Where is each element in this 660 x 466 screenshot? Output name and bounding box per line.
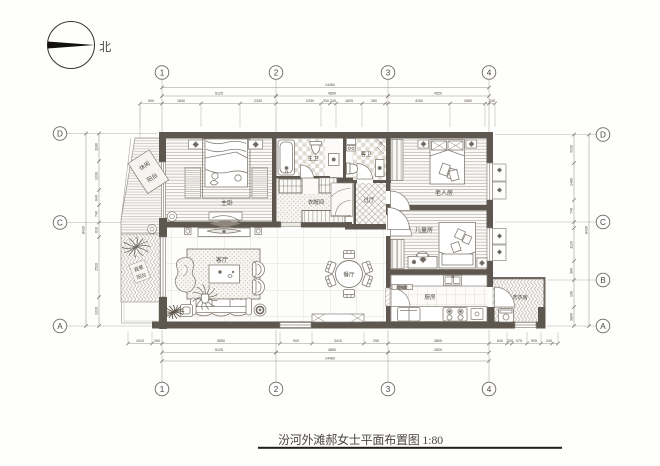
svg-text:1825: 1825 [345,99,353,103]
svg-text:8430: 8430 [82,226,86,234]
svg-text:2520: 2520 [95,263,99,271]
svg-text:330: 330 [323,99,329,103]
svg-text:1120: 1120 [570,241,574,249]
svg-text:餐厅: 餐厅 [343,271,355,279]
svg-text:A: A [600,322,606,331]
svg-text:740: 740 [95,211,99,217]
svg-text:610: 610 [95,227,99,233]
svg-text:900: 900 [293,339,299,343]
svg-text:280: 280 [371,99,377,103]
svg-text:1840: 1840 [177,99,185,103]
svg-text:D: D [600,130,606,139]
svg-text:4850: 4850 [328,348,336,352]
svg-text:250: 250 [154,339,160,343]
svg-text:900: 900 [148,99,154,103]
svg-text:740: 740 [570,208,574,214]
svg-text:1180: 1180 [95,143,99,151]
svg-text:厨房: 厨房 [424,293,436,301]
svg-text:8430: 8430 [585,226,589,234]
svg-text:3805: 3805 [434,339,442,343]
svg-text:640: 640 [95,195,99,201]
svg-text:B: B [600,276,606,285]
svg-text:客厅: 客厅 [216,256,228,264]
svg-text:1230: 1230 [95,172,99,180]
svg-text:D: D [57,129,63,138]
svg-text:4250: 4250 [415,99,423,103]
svg-text:客卫: 客卫 [361,150,372,158]
svg-text:14460: 14460 [325,357,335,361]
svg-text:C: C [57,218,63,227]
svg-text:5550: 5550 [217,339,225,343]
svg-text:905: 905 [531,339,537,343]
svg-text:C: C [600,218,606,227]
svg-text:衣帽间: 衣帽间 [308,198,324,206]
svg-text:2850: 2850 [464,99,472,103]
svg-text:240: 240 [330,99,336,103]
svg-text:245: 245 [489,99,495,103]
svg-text:2: 2 [274,68,279,77]
svg-text:主卫: 主卫 [308,155,319,163]
svg-text:205: 205 [507,339,513,343]
svg-text:2330: 2330 [254,99,262,103]
svg-text:A: A [57,322,63,331]
svg-text:1480: 1480 [570,178,574,186]
svg-text:1010: 1010 [136,339,144,343]
svg-text:975: 975 [516,339,522,343]
svg-text:4: 4 [487,385,492,394]
svg-text:1: 1 [160,68,165,77]
svg-text:配电箱: 配电箱 [397,285,408,290]
svg-text:2330: 2330 [306,99,314,103]
svg-text:4520: 4520 [434,348,442,352]
svg-text:240: 240 [546,339,552,343]
svg-text:洗衣房: 洗衣房 [512,293,528,301]
svg-text:4520: 4520 [434,92,442,96]
svg-text:3860: 3860 [570,313,574,321]
svg-text:4230: 4230 [570,145,574,153]
svg-text:儿童房: 儿童房 [415,226,433,234]
svg-text:190: 190 [570,291,574,297]
svg-text:290: 290 [373,339,379,343]
svg-text:汾河外滩郝女士平面布置图 1:80: 汾河外滩郝女士平面布置图 1:80 [278,432,443,447]
svg-text:1: 1 [160,385,165,394]
svg-text:5125: 5125 [215,92,223,96]
svg-text:主卧: 主卧 [221,199,233,207]
svg-text:1220: 1220 [95,307,99,315]
svg-text:4850: 4850 [328,92,336,96]
svg-text:4: 4 [487,68,492,77]
svg-text:14460: 14460 [325,83,335,87]
svg-text:过厅: 过厅 [364,196,375,204]
svg-text:3410: 3410 [334,339,342,343]
svg-text:3: 3 [386,68,391,77]
svg-text:3: 3 [386,385,391,394]
svg-text:360: 360 [570,268,574,274]
svg-text:640: 640 [497,339,503,343]
svg-text:北: 北 [99,40,111,54]
svg-text:2: 2 [274,385,279,394]
svg-text:老人房: 老人房 [435,189,453,197]
svg-text:5125: 5125 [215,348,223,352]
